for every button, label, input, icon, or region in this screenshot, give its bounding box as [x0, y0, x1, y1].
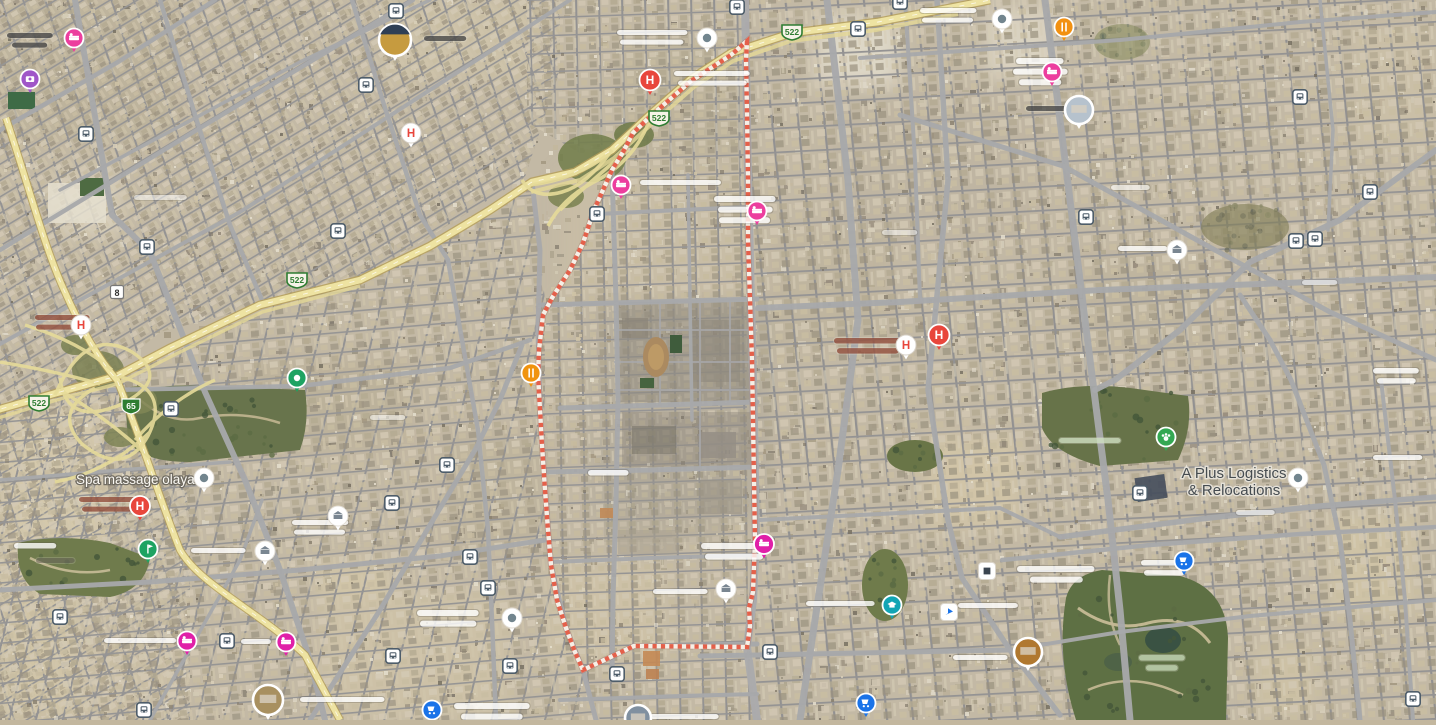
svg-text:H: H	[935, 328, 944, 342]
svg-text:522: 522	[32, 398, 46, 408]
svg-text:H: H	[646, 73, 655, 87]
svg-text:H: H	[407, 128, 415, 140]
svg-text:H: H	[77, 320, 85, 332]
svg-text:A Plus Logistics: A Plus Logistics	[1181, 465, 1286, 482]
svg-text:522: 522	[652, 113, 666, 123]
svg-text:& Relocations: & Relocations	[1188, 482, 1281, 499]
svg-text:8: 8	[114, 288, 119, 298]
svg-text:522: 522	[785, 27, 799, 37]
svg-text:Spa massage olaya: Spa massage olaya	[76, 472, 195, 487]
svg-text:H: H	[902, 340, 910, 352]
svg-text:H: H	[136, 499, 145, 513]
svg-text:65: 65	[126, 401, 136, 411]
svg-text:522: 522	[290, 275, 304, 285]
